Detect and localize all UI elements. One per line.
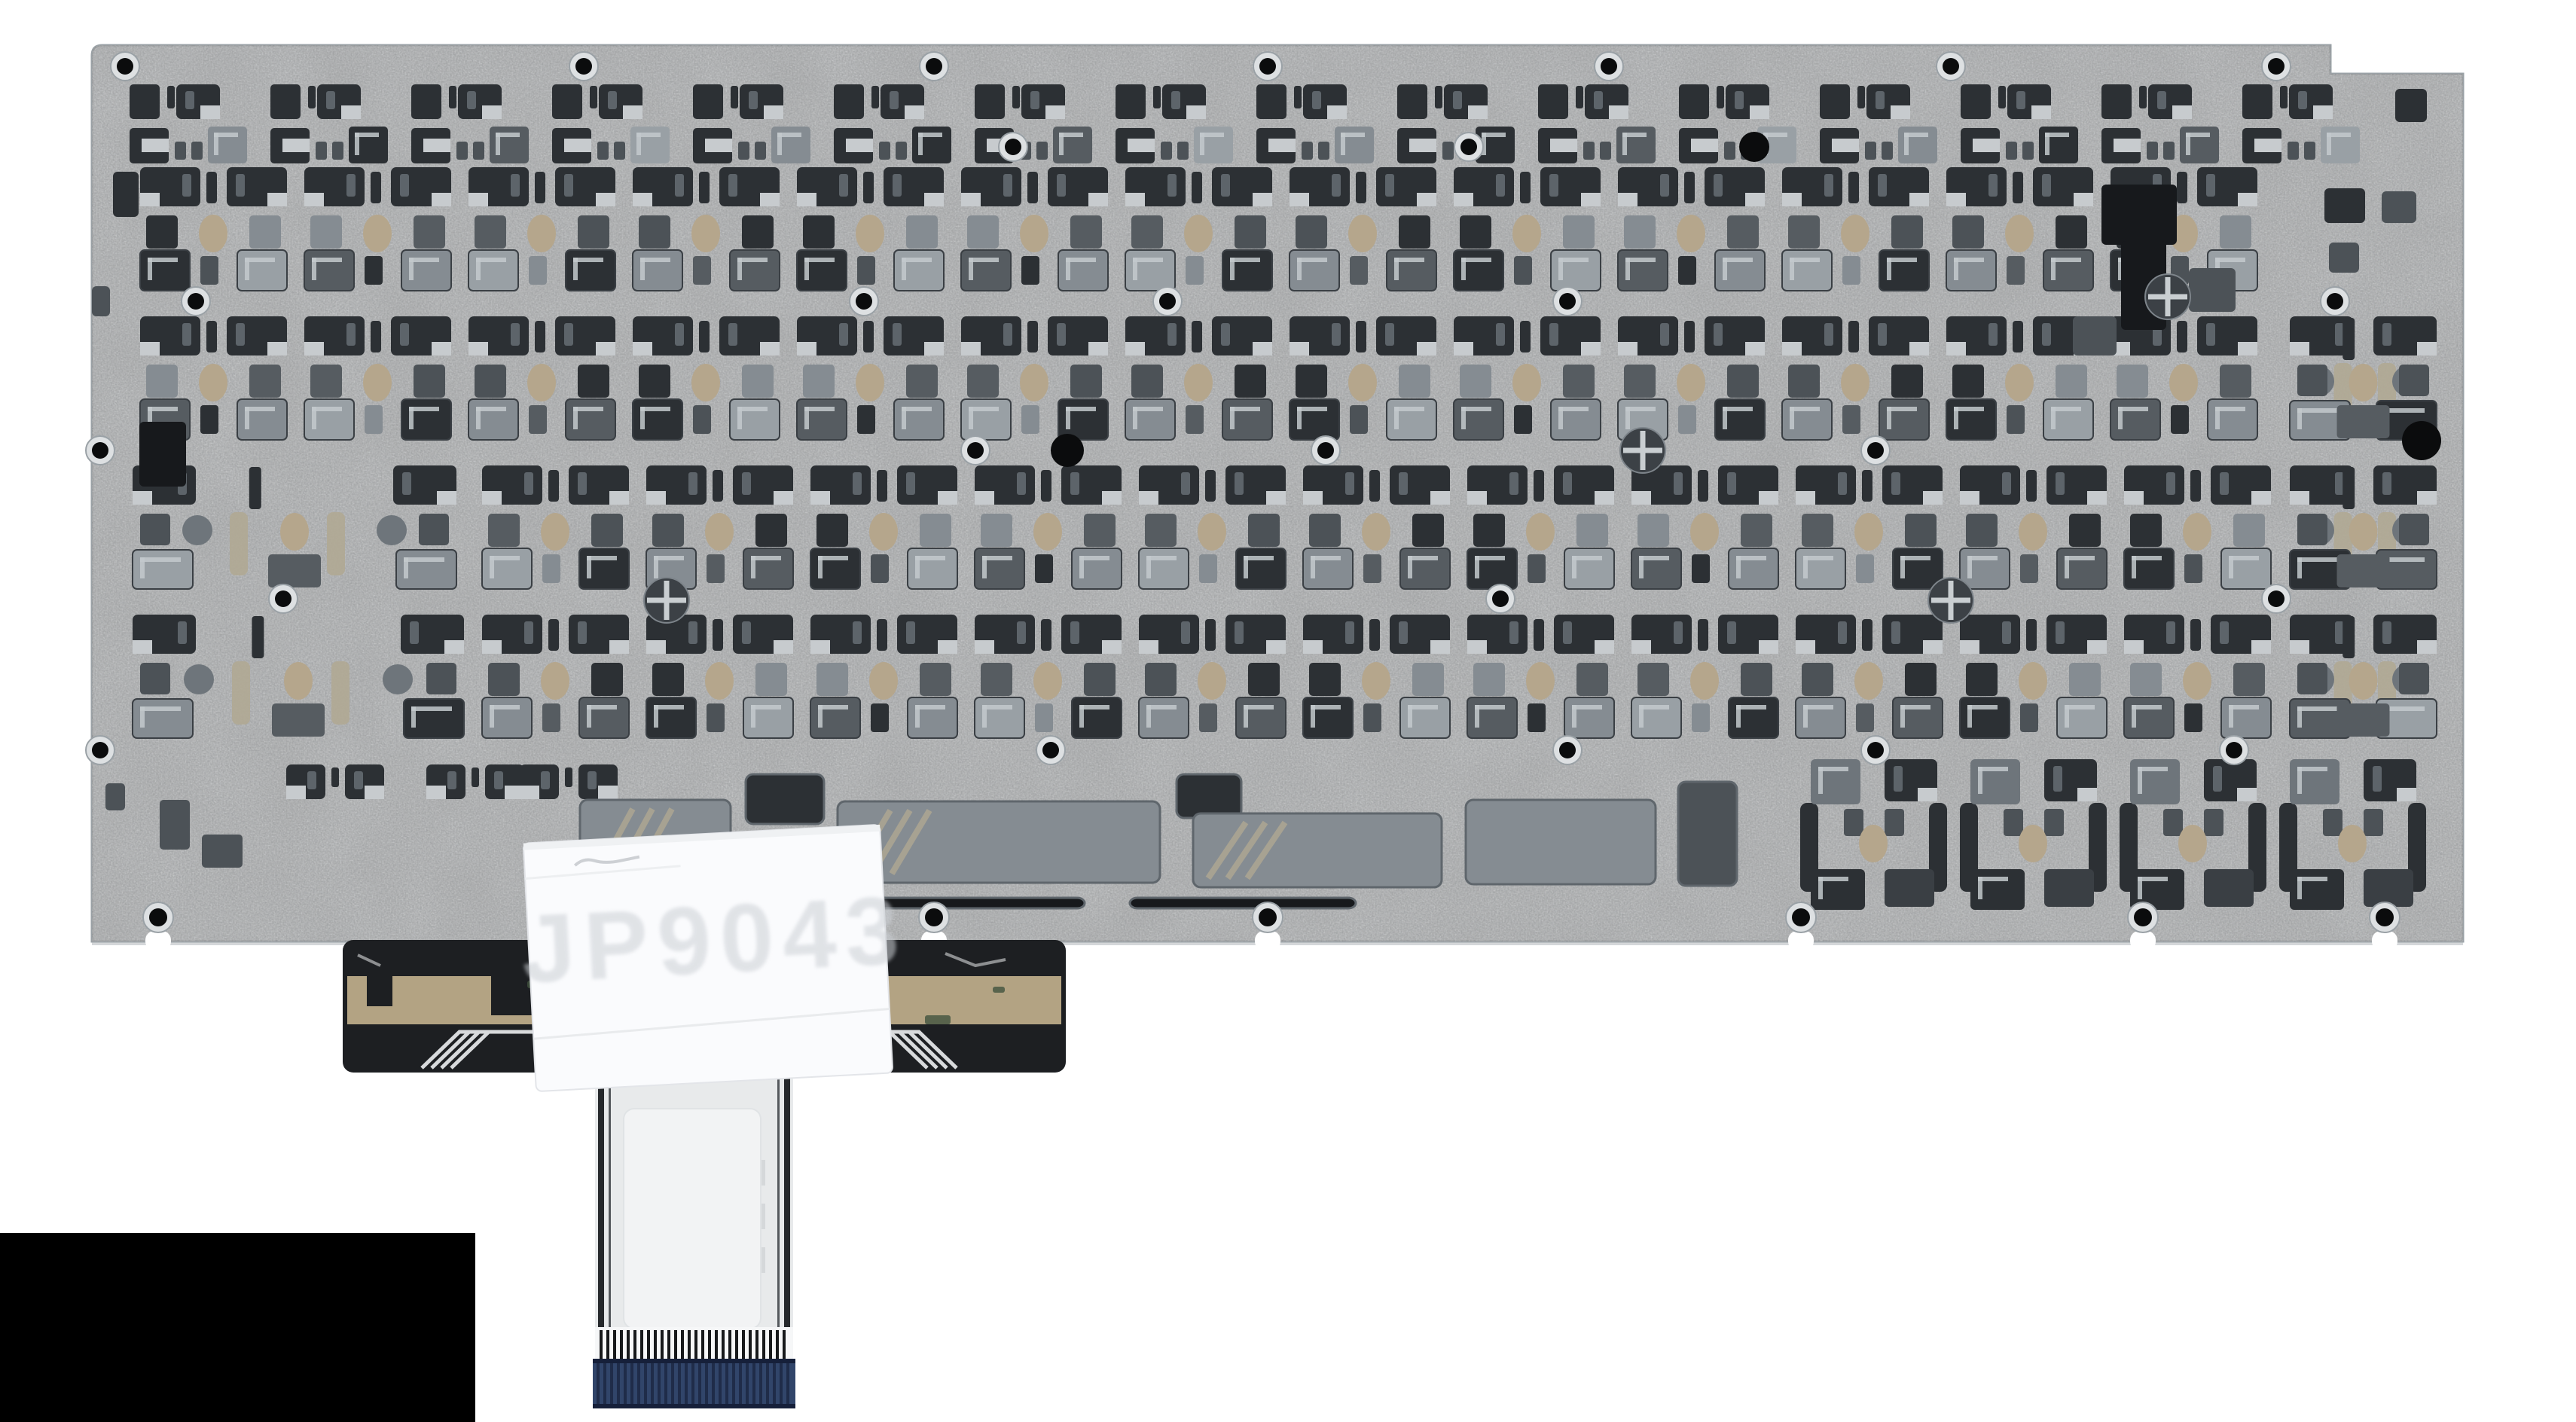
key-cutout-cluster (1454, 316, 1601, 440)
product-photo-stage: JP9043 (0, 0, 2576, 1422)
contact-finger (715, 1330, 718, 1360)
spacebar-cutout (1193, 813, 1442, 887)
key-cutout-cluster (1618, 316, 1765, 440)
contact-finger (769, 1330, 772, 1360)
screw-hole (1867, 742, 1884, 758)
screw-hole (1042, 742, 1059, 758)
key-cutout-cluster (1946, 167, 2093, 291)
contact-finger (708, 1330, 711, 1360)
contact-finger (735, 1330, 738, 1360)
key-cutout-cluster (1139, 465, 1286, 589)
large-hole (1739, 132, 1769, 162)
screw-hole (1559, 742, 1576, 758)
extra-cutout (2382, 191, 2416, 223)
edge-notch (2372, 931, 2397, 951)
contact-finger (755, 1330, 758, 1360)
key-cutout-cluster (304, 167, 451, 291)
key-cutout-cluster (482, 615, 629, 738)
label-print-text: JP9043 (519, 876, 911, 1004)
contact-finger (606, 1330, 609, 1360)
screw-hole (2226, 742, 2242, 758)
extra-cutout (139, 422, 186, 487)
ffc-edge-line (598, 1073, 604, 1330)
screw-hole (575, 58, 592, 75)
ffc-print-mark (762, 1204, 765, 1229)
screw-hole (2268, 58, 2285, 75)
key-cutout-cluster (810, 615, 957, 738)
screw-hole (1259, 908, 1277, 926)
pcb-mark (993, 987, 1005, 993)
contact-finger (667, 1330, 670, 1360)
contact-finger (647, 1330, 650, 1360)
key-cutout-cluster (1960, 465, 2107, 589)
key-cutout-cluster (1782, 167, 1929, 291)
contact-finger (633, 1330, 636, 1360)
key-cutout-cluster (1139, 615, 1286, 738)
key-cutout-cluster (140, 167, 287, 291)
contact-finger (681, 1330, 684, 1360)
screw-hole (1792, 908, 1810, 926)
large-hole (1051, 434, 1084, 467)
key-cutout-cluster (2111, 316, 2257, 440)
screw-hole (925, 908, 943, 926)
spacebar-cutout (1177, 774, 1241, 818)
key-cutout-cluster (469, 316, 615, 440)
extra-cutout (2324, 188, 2365, 223)
contact-finger (640, 1330, 643, 1360)
key-cutout-cluster (1290, 316, 1436, 440)
key-cutout-cluster (975, 465, 1122, 589)
key-cutout-cluster (1467, 465, 1614, 589)
contact-finger (762, 1330, 765, 1360)
key-cutout-cluster (961, 316, 1108, 440)
contact-finger (783, 1330, 786, 1360)
pcb-mark (925, 1015, 951, 1024)
contact-finger (728, 1330, 731, 1360)
key-cutout-cluster (1618, 167, 1765, 291)
screw-hole (117, 58, 133, 75)
contact-finger (776, 1330, 779, 1360)
key-cutout-cluster (304, 316, 451, 440)
key-cutout-cluster (1631, 465, 1778, 589)
screw-hole (2376, 908, 2394, 926)
contact-finger (742, 1330, 745, 1360)
key-cutout-cluster (1125, 316, 1272, 440)
small-cutout (105, 783, 125, 810)
extra-cutout (2101, 185, 2177, 245)
screw-hole (275, 590, 291, 607)
contact-finger (661, 1330, 664, 1360)
screw-hole (1005, 139, 1021, 155)
key-cutout-cluster (1303, 615, 1450, 738)
key-cutout-cluster (1960, 615, 2107, 738)
key-cutout-cluster (1782, 316, 1929, 440)
screw-hole (1460, 139, 1477, 155)
extra-cutout (2329, 243, 2359, 273)
ffc-print-mark (762, 1247, 765, 1273)
edge-notch (1255, 931, 1280, 951)
label-sticker: JP9043 (516, 823, 915, 1091)
contact-finger (600, 1330, 603, 1360)
tape-tab (367, 976, 392, 1006)
screw-hole (1159, 293, 1176, 310)
screw-hole (1943, 58, 1959, 75)
key-cutout-cluster (140, 316, 287, 440)
screw-hole (188, 293, 204, 310)
key-cutout-cluster (1467, 615, 1614, 738)
key-cutout-cluster (810, 465, 957, 589)
key-cutout-cluster (633, 316, 780, 440)
contact-finger (688, 1330, 691, 1360)
key-cutout-cluster (797, 167, 944, 291)
screw-hole (92, 442, 108, 459)
screw-hole (1492, 590, 1509, 607)
contact-finger (749, 1330, 752, 1360)
contact-finger (701, 1330, 704, 1360)
extra-cutout (2395, 89, 2427, 122)
screw-hole (2327, 293, 2343, 310)
key-cutout-cluster (646, 465, 793, 589)
contact-finger (722, 1330, 725, 1360)
spacebar-cutout (1130, 898, 1356, 908)
key-cutout-cluster (1946, 316, 2093, 440)
key-cutout-cluster (482, 465, 629, 589)
ffc-print-mark (762, 1160, 765, 1186)
screw-hole (2134, 908, 2152, 926)
ffc-inner-panel (624, 1109, 761, 1329)
censor-black-box (0, 1233, 475, 1422)
key-cutout-cluster (633, 167, 780, 291)
edge-notch (1788, 931, 1814, 951)
edge-notch (2130, 931, 2156, 951)
spacebar-cutout (1678, 782, 1737, 886)
key-cutout-cluster (975, 615, 1122, 738)
keyboard-backplate-photo: JP9043 (0, 0, 2576, 1422)
contact-finger (674, 1330, 677, 1360)
key-cutout-cluster (797, 316, 944, 440)
key-cutout-cluster (1454, 167, 1601, 291)
extra-cutout (113, 172, 139, 217)
key-cutout-cluster (1303, 465, 1450, 589)
extra-cutout (2073, 316, 2117, 355)
screw-hole (2268, 590, 2285, 607)
key-cutout-cluster (2124, 615, 2271, 738)
key-cutout-cluster (1290, 167, 1436, 291)
screw-hole (1867, 442, 1884, 459)
small-cutout (202, 835, 243, 868)
screw-hole (92, 742, 108, 758)
key-cutout-cluster (2124, 465, 2271, 589)
key-cutout-cluster (961, 167, 1108, 291)
spacebar-cutout (746, 774, 824, 824)
key-cutout-cluster (469, 167, 615, 291)
edge-notch (145, 931, 171, 951)
key-cutout-cluster (1125, 167, 1272, 291)
contact-finger (654, 1330, 657, 1360)
screw-hole (1259, 58, 1276, 75)
screw-hole (1559, 293, 1576, 310)
large-hole (2402, 421, 2441, 460)
ffc-edge-line (784, 1073, 790, 1330)
key-cutout-cluster (1631, 615, 1778, 738)
extra-cutout (92, 286, 110, 316)
screw-hole (149, 908, 167, 926)
key-cutout-cluster (646, 615, 793, 738)
ribbon-cable (593, 1073, 795, 1408)
small-cutout (160, 800, 190, 850)
screw-hole (1601, 58, 1617, 75)
spacebar-cutout (838, 801, 1160, 883)
screw-hole (926, 58, 942, 75)
screw-hole (856, 293, 872, 310)
screw-hole (1317, 442, 1334, 459)
contact-finger (620, 1330, 623, 1360)
key-cutout-cluster (1796, 465, 1943, 589)
spacebar-cutout (1466, 800, 1656, 884)
contact-finger (694, 1330, 697, 1360)
contact-finger (627, 1330, 630, 1360)
key-cutout-cluster (1796, 615, 1943, 738)
extra-cutout (2189, 268, 2236, 312)
screw-hole (967, 442, 984, 459)
contact-finger (613, 1330, 616, 1360)
